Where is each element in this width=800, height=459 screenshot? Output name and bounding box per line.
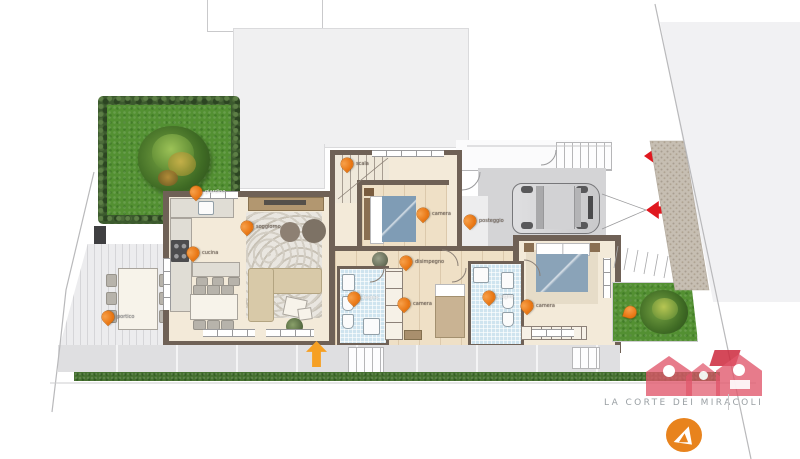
sofa-chaise	[248, 268, 274, 322]
desk	[404, 330, 422, 340]
map-pin-living[interactable]: soggiorno	[241, 221, 255, 237]
map-pin-porch[interactable]: portico	[102, 311, 116, 327]
bidet-icon	[502, 312, 514, 327]
nightstand	[364, 188, 374, 196]
logo-house-window	[733, 364, 745, 376]
map-pin-kitchen[interactable]: cucina	[187, 247, 201, 263]
kitchen-sink	[198, 201, 214, 215]
neighbor-building	[233, 28, 469, 148]
kitchen-island	[192, 262, 240, 277]
bidet-icon	[342, 314, 354, 329]
location-pin-icon	[185, 245, 202, 262]
map-pin-bedroom-1[interactable]: camera	[417, 208, 431, 224]
car-roof	[543, 186, 575, 229]
location-pin-icon	[462, 213, 479, 230]
window	[603, 258, 611, 298]
floor-plan-canvas: giardino cucina soggiorno scala camera p…	[0, 0, 800, 459]
window	[203, 329, 255, 337]
map-pin-stairs[interactable]: scala	[341, 158, 355, 174]
bed-blanket	[382, 196, 416, 242]
outdoor-table	[118, 268, 158, 330]
location-pin-icon	[346, 290, 363, 307]
road-zone	[660, 22, 800, 302]
bush-highlight	[652, 298, 678, 320]
location-pin-icon	[100, 309, 117, 326]
location-pin-icon	[519, 298, 536, 315]
location-pin-icon	[398, 254, 415, 271]
logo-house-door	[730, 380, 750, 389]
sink-icon	[342, 274, 355, 291]
outdoor-chair	[106, 292, 117, 305]
pin-label: camera	[536, 303, 555, 309]
dining-chair	[207, 285, 220, 295]
exterior-stairs-top	[556, 142, 612, 170]
car-rear-window	[575, 188, 581, 227]
map-pin-parking[interactable]: posteggio	[464, 215, 478, 231]
logo-house-window	[663, 365, 675, 377]
bed-blanket	[536, 254, 588, 292]
pin-label: portico	[117, 314, 134, 320]
logo-house-window	[699, 371, 708, 380]
car-wheel	[521, 222, 533, 229]
location-pin-icon	[481, 289, 498, 306]
logo-houses-icon	[646, 350, 766, 396]
dining-chair	[193, 285, 206, 295]
pin-label: bagno	[498, 294, 514, 300]
garden-steps	[572, 347, 600, 369]
window	[372, 150, 444, 157]
map-pin-bathroom-2[interactable]: bagno	[483, 291, 497, 307]
dining-chair	[221, 285, 234, 295]
location-pin-icon	[239, 219, 256, 236]
map-pin-garden-left[interactable]: giardino	[190, 186, 204, 202]
logo-house	[646, 356, 692, 396]
location-pin-icon	[396, 296, 413, 313]
pin-label: camera	[432, 211, 451, 217]
map-pin-bathroom-1[interactable]: bagno	[348, 292, 362, 308]
pin-label: cucina	[202, 250, 218, 256]
map-pin-hallway[interactable]: disimpegno	[400, 256, 414, 272]
access-arrow-icon	[644, 147, 676, 165]
tv-icon	[264, 200, 306, 205]
window	[266, 329, 314, 337]
kitchen-counter	[170, 218, 192, 312]
coffee-table-round	[280, 222, 300, 242]
car-wheel	[521, 186, 533, 193]
logo-divider	[728, 394, 729, 410]
pin-label: scala	[356, 161, 369, 167]
pin-label: bagno	[363, 295, 379, 301]
outdoor-chair	[106, 274, 117, 287]
nightstand	[590, 243, 600, 252]
agency-name: LA CORTE DEI MIRACOLI	[604, 398, 763, 408]
tree-trunk-shadow	[158, 170, 178, 186]
window	[532, 329, 574, 337]
sink-icon	[501, 272, 514, 289]
terrace-door	[163, 258, 171, 310]
hedge-strip	[74, 372, 720, 381]
entrance-steps	[348, 347, 384, 373]
map-pin-bedroom-2[interactable]: camera	[398, 298, 412, 314]
neighbor-building-wing	[233, 144, 325, 189]
location-pin-icon	[415, 206, 432, 223]
pin-label: disimpegno	[415, 259, 444, 265]
logo-compass-icon	[666, 418, 702, 452]
coffee-table-round	[302, 219, 326, 243]
shower-icon	[363, 318, 380, 335]
location-pin-icon	[339, 156, 356, 173]
pin-label: giardino	[205, 189, 225, 195]
logo-house	[686, 363, 720, 396]
map-pin-master-bedroom[interactable]: camera	[521, 300, 535, 316]
walkway	[58, 345, 620, 372]
pin-label: soggiorno	[256, 224, 281, 230]
car-trunk	[588, 196, 593, 219]
bed-blanket	[435, 296, 465, 338]
nightstand	[524, 243, 534, 252]
pin-label: posteggio	[479, 218, 504, 224]
access-arrow-icon	[646, 201, 678, 219]
car-windshield	[536, 186, 543, 229]
pin-label: camera	[413, 301, 432, 307]
dining-table	[190, 294, 238, 320]
shower-icon	[473, 267, 489, 283]
location-pin-icon	[188, 184, 205, 201]
